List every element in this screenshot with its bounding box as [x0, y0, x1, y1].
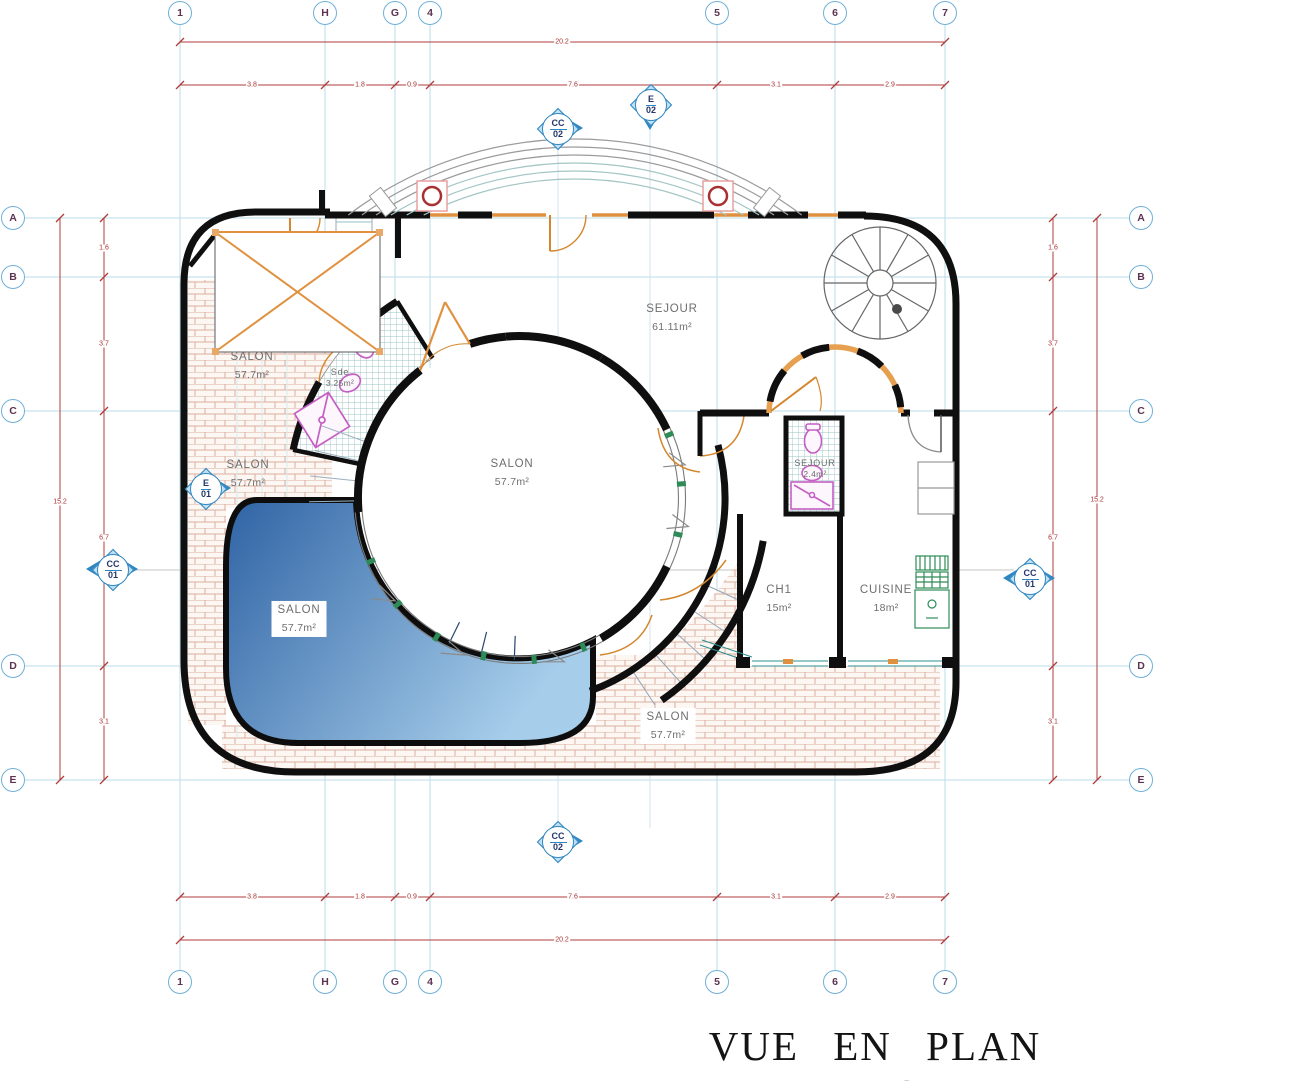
grid-bubble-col-7-bottom: 7 [933, 970, 957, 994]
dim-left-seg-3: 6.7 [98, 535, 110, 542]
room-label-sejour-bath: SEJOUR2.4m² [794, 458, 835, 480]
grid-bubble-row-A-left: A [1, 206, 25, 230]
dim-bottom-overall: 20.2 [554, 937, 570, 944]
room-label-salon-center: SALON57.7m² [491, 456, 534, 490]
dim-right-seg-3: 6.7 [1047, 535, 1059, 542]
grid-bubble-col-4-top: 4 [418, 1, 442, 25]
dim-top-seg-1: 3.8 [246, 82, 258, 89]
grid-bubble-col-5-bottom: 5 [705, 970, 729, 994]
grid-bubble-row-C-right: C [1129, 399, 1153, 423]
dim-right-overall: 15.2 [1089, 497, 1105, 504]
grid-bubble-col-G-top: G [383, 1, 407, 25]
grid-bubble-col-6-bottom: 6 [823, 970, 847, 994]
dim-bottom-seg-2: 1.8 [354, 894, 366, 901]
grid-bubble-row-B-right: B [1129, 265, 1153, 289]
spiral-stair [824, 227, 936, 339]
dim-top-seg-4: 7.6 [567, 82, 579, 89]
dim-bottom-seg-4: 7.6 [567, 894, 579, 901]
dim-bottom-seg-5: 3.1 [770, 894, 782, 901]
grid-bubble-col-H-bottom: H [313, 970, 337, 994]
grid-bubble-row-E-left: E [1, 768, 25, 792]
grid-bubble-col-H-top: H [313, 1, 337, 25]
grid-bubble-col-7-top: 7 [933, 1, 957, 25]
drawing-title: VUE EN PLAN RDC [660, 1022, 1090, 1081]
grid-bubble-col-5-top: 5 [705, 1, 729, 25]
dim-right-seg-1: 1.6 [1047, 245, 1059, 252]
dim-left-overall: 15.2 [52, 499, 68, 506]
dim-top-seg-5: 3.1 [770, 82, 782, 89]
void-xbox [212, 229, 383, 355]
room-label-salon-nw: SALON57.7m² [231, 349, 274, 383]
dim-top-seg-2: 1.8 [354, 82, 366, 89]
grid-bubble-col-4-bottom: 4 [418, 970, 442, 994]
room-label-cuisine: CUISINE18m² [860, 582, 912, 616]
room-label-salon-pool: SALON57.7m² [272, 601, 327, 637]
grid-bubble-col-G-bottom: G [383, 970, 407, 994]
dim-bottom-seg-6: 2.9 [884, 894, 896, 901]
dim-bottom-seg-3: 0.9 [406, 894, 418, 901]
dim-top-seg-3: 0.9 [406, 82, 418, 89]
floorplan-canvas: 1 H G 4 5 6 7 1 H G 4 5 6 7 A B C D E A … [0, 0, 1312, 1081]
grid-bubble-col-6-top: 6 [823, 1, 847, 25]
grid-bubble-row-D-right: D [1129, 654, 1153, 678]
dim-left-seg-1: 1.6 [98, 245, 110, 252]
dim-bottom-seg-1: 3.8 [246, 894, 258, 901]
floorplan-drawing [0, 0, 1312, 1081]
dim-top-overall: 20.2 [554, 39, 570, 46]
dim-right-seg-4: 3.1 [1047, 719, 1059, 726]
grid-bubble-row-E-right: E [1129, 768, 1153, 792]
dim-top-seg-6: 2.9 [884, 82, 896, 89]
grid-bubble-row-A-right: A [1129, 206, 1153, 230]
room-label-salon-w: SALON57.7m² [227, 457, 270, 491]
grid-bubble-row-C-left: C [1, 399, 25, 423]
room-label-sde: Sde3.25m² [326, 367, 354, 389]
dim-right-seg-2: 3.7 [1047, 341, 1059, 348]
dim-left-seg-4: 3.1 [98, 719, 110, 726]
dim-left-seg-2: 3.7 [98, 341, 110, 348]
grid-bubble-col-1-top: 1 [168, 1, 192, 25]
room-label-ch1: CH115m² [766, 582, 791, 616]
grid-bubble-row-B-left: B [1, 265, 25, 289]
canopy-columns [417, 181, 733, 211]
grid-bubble-col-1-bottom: 1 [168, 970, 192, 994]
room-label-salon-s: SALON57.7m² [641, 708, 696, 744]
grid-bubble-row-D-left: D [1, 654, 25, 678]
room-label-sejour: SEJOUR61.11m² [646, 301, 697, 335]
